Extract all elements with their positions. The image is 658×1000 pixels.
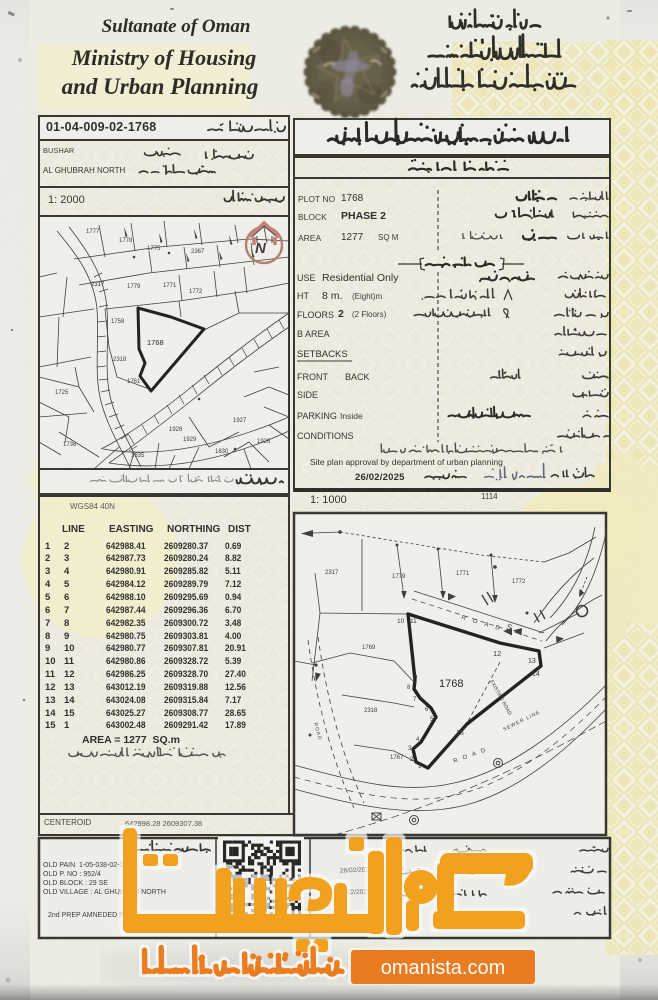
- svg-text:omanista.com: omanista.com: [381, 957, 506, 979]
